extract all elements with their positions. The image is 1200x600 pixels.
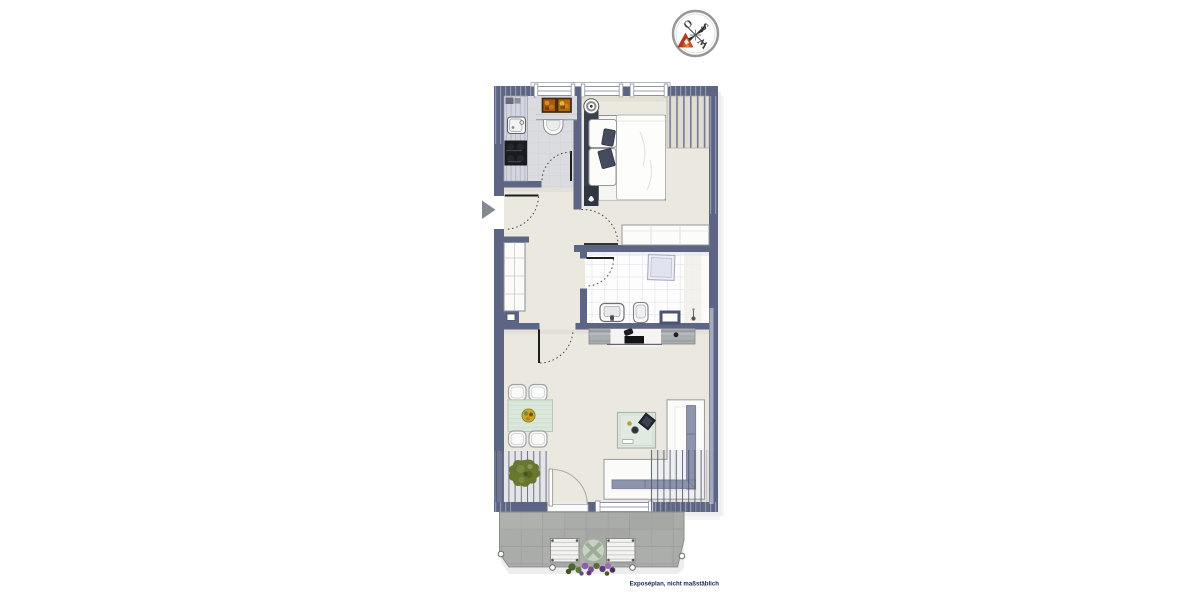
svg-text:Exposeplan Wohnung Grundriss E: Exposeplan Wohnung Grundriss EG (709, 422, 714, 489)
svg-text:Exposéplan, nicht maßstäblich: Exposéplan, nicht maßstäblich (630, 581, 720, 588)
